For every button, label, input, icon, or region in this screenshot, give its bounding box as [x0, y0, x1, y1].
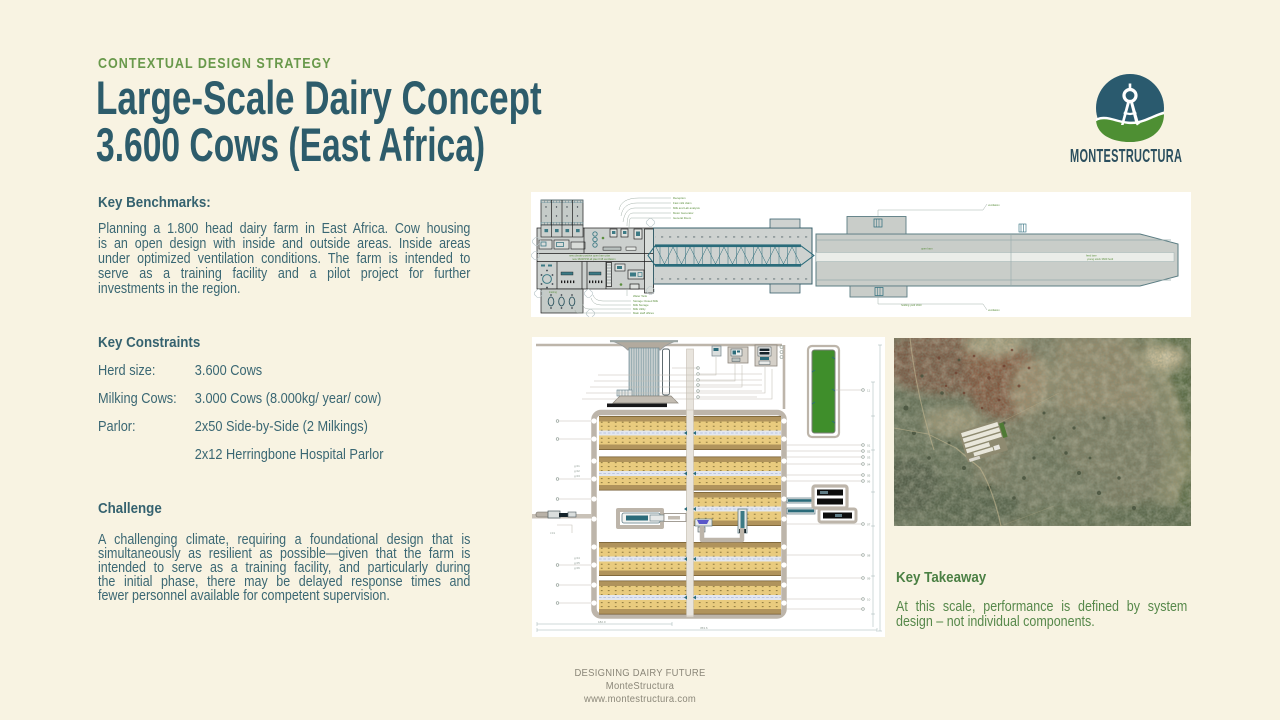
- svg-text:Reception: Reception: [673, 196, 686, 200]
- svg-text:g 05: g 05: [574, 561, 580, 565]
- svg-text:04: 04: [867, 463, 871, 467]
- svg-text:07: 07: [867, 523, 871, 527]
- svg-text:09: 09: [867, 577, 871, 581]
- svg-text:353.6: 353.6: [700, 626, 708, 630]
- svg-text:training: training: [549, 291, 558, 294]
- svg-text:Fast milk claim: Fast milk claim: [673, 201, 692, 205]
- svg-text:Motor Generator: Motor Generator: [673, 211, 694, 215]
- svg-text:new 3600PPM all plan K38 venti: new 3600PPM all plan K38 ventilation: [572, 257, 616, 261]
- svg-text:General Room: General Room: [673, 216, 692, 220]
- svg-text:08: 08: [867, 554, 871, 558]
- svg-text:02: 02: [867, 450, 871, 454]
- svg-text:03: 03: [867, 456, 871, 460]
- svg-text:g 04: g 04: [574, 556, 580, 560]
- svg-text:ventilation: ventilation: [988, 203, 1000, 207]
- svg-text:11: 11: [867, 389, 870, 393]
- svg-text:g 06: g 06: [574, 566, 580, 570]
- svg-text:holding yard 3600: holding yard 3600: [901, 303, 922, 307]
- svg-text:ventilation: ventilation: [988, 308, 1000, 312]
- svg-text:10: 10: [867, 598, 871, 602]
- svg-text:01: 01: [867, 444, 871, 448]
- svg-text:t 01: t 01: [550, 531, 555, 535]
- svg-text:g 01: g 01: [574, 464, 580, 468]
- svg-text:g 03: g 03: [574, 474, 580, 478]
- svg-text:Water Tank: Water Tank: [633, 294, 648, 298]
- svg-text:young stock 3600 herd: young stock 3600 herd: [1087, 257, 1114, 261]
- svg-text:182.0: 182.0: [598, 620, 606, 624]
- svg-text:open barn: open barn: [921, 247, 933, 251]
- svg-text:Milk and Lab analysis: Milk and Lab analysis: [673, 206, 700, 210]
- svg-text:06: 06: [867, 480, 871, 484]
- svg-text:feed lane: feed lane: [1086, 254, 1097, 258]
- svg-text:05: 05: [867, 474, 871, 478]
- svg-text:Main staff offices: Main staff offices: [633, 311, 654, 315]
- svg-text:g 02: g 02: [574, 469, 580, 473]
